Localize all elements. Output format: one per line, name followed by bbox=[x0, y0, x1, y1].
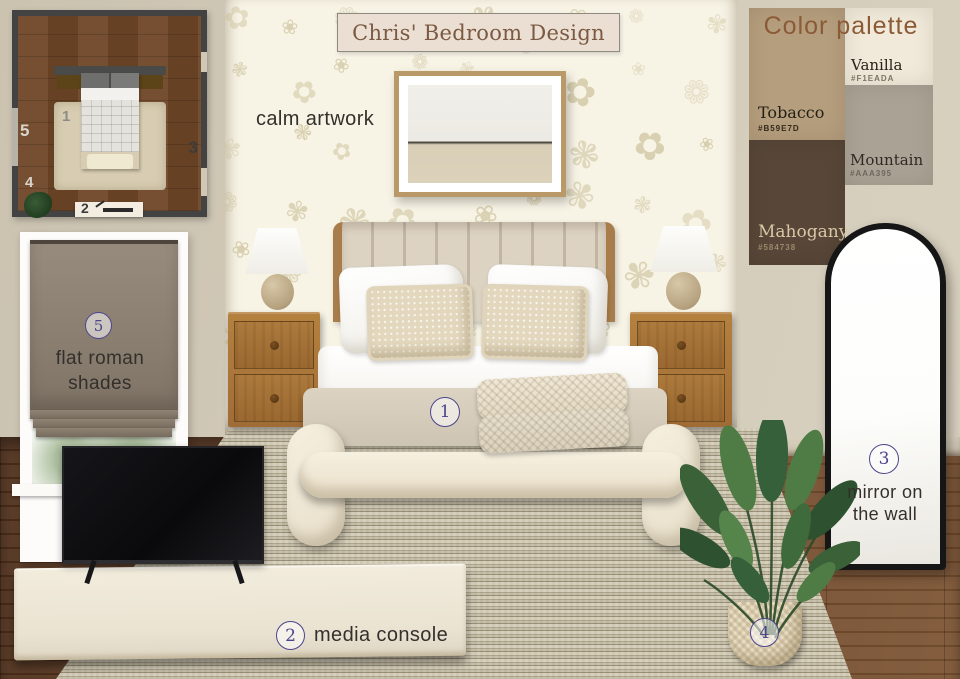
swatch-mahogany-name: Mahogany bbox=[758, 222, 848, 242]
floor-plan-tv-mark bbox=[95, 200, 104, 207]
wallpaper-flower-glyph: ✿ bbox=[284, 74, 326, 110]
drawer-knob bbox=[270, 341, 279, 350]
floor-plan-nightstand-right bbox=[139, 75, 163, 89]
floor-plan-bed-sheets bbox=[81, 88, 139, 100]
mirror-label-line1: mirror on bbox=[834, 481, 936, 503]
swatch-mahogany-hex: #584738 bbox=[758, 243, 796, 252]
drawer bbox=[234, 321, 313, 369]
board-title: Chris' Bedroom Design bbox=[337, 13, 620, 52]
roman-shade-fold bbox=[33, 419, 175, 428]
palette-heading: Color palette bbox=[745, 12, 937, 41]
wallpaper-flower-glyph: ✾ bbox=[705, 9, 730, 41]
blanket-fold bbox=[478, 408, 630, 454]
annotation-badge-shades: 5 bbox=[85, 312, 112, 339]
floor-plan-number-window: 5 bbox=[20, 121, 29, 141]
floor-plan-bed-pillows bbox=[81, 73, 139, 88]
floor-plan-plant bbox=[24, 192, 52, 218]
floor-plan-door-gap-top bbox=[201, 52, 207, 72]
drawer-knob bbox=[270, 394, 279, 403]
design-board: ✿❀❁✾❃✿❀❁✾❃✿❀❁✾❃✿❀❁✾❃✿❀❁✾❃✿❀❁✾❃✿❀❁✾❃✿❀❁✾❃… bbox=[0, 0, 960, 679]
mirror-label: mirror on the wall bbox=[834, 481, 936, 525]
swatch-vanilla-hex: #F1EADA bbox=[851, 74, 894, 83]
floor-plan-nightstand-left bbox=[57, 75, 81, 89]
artwork-image bbox=[408, 85, 552, 183]
floor-plan-bed bbox=[81, 73, 139, 169]
floor-plan-number-mirror: 3 bbox=[189, 138, 198, 158]
artwork-frame bbox=[394, 71, 566, 197]
swatch-vanilla-name: Vanilla bbox=[851, 56, 902, 74]
wallpaper-flower-glyph: ❃ bbox=[225, 55, 254, 84]
wallpaper-flower-glyph: ❀ bbox=[328, 50, 355, 79]
shades-label-line1: flat roman bbox=[25, 346, 175, 371]
wallpaper-flower-glyph: ❁ bbox=[626, 3, 646, 28]
bench-seat bbox=[300, 452, 688, 498]
lamp-base-left bbox=[261, 274, 294, 310]
drawer-knob bbox=[677, 394, 686, 403]
roman-shade-fold bbox=[36, 428, 172, 437]
floor-plan-number-bed: 1 bbox=[62, 108, 70, 125]
lamp-base-right bbox=[666, 272, 701, 310]
wallpaper-flower-glyph: ❀ bbox=[630, 59, 646, 80]
floor-plan-tv bbox=[103, 208, 133, 212]
roman-shade-fold bbox=[30, 410, 178, 419]
swatch-mountain: Mountain #AAA395 bbox=[845, 85, 933, 185]
swatch-mahogany: Mahogany #584738 bbox=[749, 140, 845, 265]
wallpaper-flower-glyph: ❁ bbox=[673, 72, 719, 112]
swatch-tobacco-hex: #B59E7D bbox=[758, 124, 800, 133]
drawer bbox=[234, 374, 313, 422]
drawer-knob bbox=[677, 341, 686, 350]
floor-plan-window bbox=[12, 108, 18, 166]
annotation-badge-bed: 1 bbox=[430, 397, 460, 427]
wallpaper-flower-glyph: ❁ bbox=[225, 185, 246, 218]
floor-plan-bench bbox=[87, 154, 133, 169]
floor-plan-door-gap-bottom bbox=[201, 168, 207, 196]
annotation-badge-mirror: 3 bbox=[869, 444, 899, 474]
floor-plan-number-console: 2 bbox=[81, 200, 89, 216]
wallpaper-flower-glyph: ✿ bbox=[225, 0, 259, 38]
pillow-textured-left bbox=[366, 284, 474, 362]
floor-plan-bed-mattress bbox=[81, 100, 139, 152]
pillow-textured-right bbox=[481, 284, 589, 362]
console-label: media console bbox=[314, 624, 448, 647]
wallpaper-flower-glyph: ✾ bbox=[277, 190, 317, 230]
swatch-mountain-hex: #AAA395 bbox=[850, 169, 892, 178]
artwork-label: calm artwork bbox=[256, 108, 374, 131]
swatch-mountain-name: Mountain bbox=[850, 151, 923, 169]
wallpaper-flower-glyph: ✿ bbox=[327, 134, 357, 168]
wallpaper-flower-glyph: ✾ bbox=[225, 131, 243, 166]
shades-label-line2: shades bbox=[25, 371, 175, 396]
wallpaper-flower-glyph: ❀ bbox=[275, 15, 304, 40]
annotation-badge-console: 2 bbox=[276, 621, 305, 650]
swatch-tobacco-name: Tobacco bbox=[758, 103, 824, 122]
tv-screen bbox=[62, 446, 264, 564]
floor-plan: 1 2 3 4 5 bbox=[12, 10, 207, 217]
folded-blanket bbox=[476, 372, 630, 454]
shades-label: flat roman shades bbox=[25, 346, 175, 396]
annotation-badge-plant: 4 bbox=[750, 618, 779, 647]
wallpaper-flower-glyph: ❃ bbox=[626, 189, 658, 219]
mirror-label-line2: the wall bbox=[834, 503, 936, 525]
wallpaper-flower-glyph: ✿ bbox=[624, 123, 677, 168]
wallpaper-flower-glyph: ❀ bbox=[693, 132, 719, 157]
floor-plan-number-plant: 4 bbox=[25, 174, 33, 191]
